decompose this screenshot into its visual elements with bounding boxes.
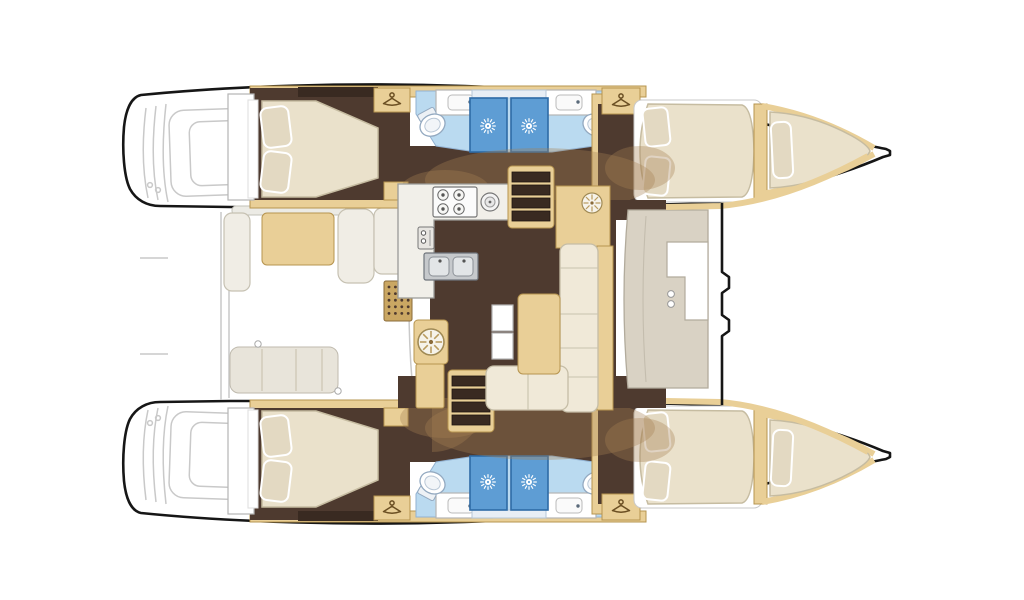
galley-return-cabinet [556,186,610,248]
aft-cockpit [221,206,416,402]
double-sink [424,253,478,280]
side-table [492,333,513,359]
burner-icon [454,190,464,200]
salon-cabinet [416,364,444,408]
bridgedeck-front-bulkhead [722,203,729,405]
coffee-table [518,294,560,374]
burner-icon [454,204,464,214]
floorplan-page: Catamaran 4-cabin interior layout — top-… [0,0,1024,600]
floorplan-canvas [0,0,1024,600]
cup-holder [668,291,675,298]
side-table [492,305,513,331]
stairs-port [508,166,554,228]
cockpit-side-cushion [224,213,250,291]
drain [489,201,492,204]
forward-cockpit [624,210,708,388]
radial-table-icon [582,193,602,213]
cockpit-table [262,213,334,265]
appliance-icon [418,227,434,249]
radial-table-icon [418,329,444,355]
stern-detail-lines [140,258,168,354]
burner-icon [438,204,448,214]
cup-holder [668,301,675,308]
burner-icon [438,190,448,200]
settee-back [597,246,613,410]
aft-bench [230,341,341,394]
cockpit-cushion [338,209,374,283]
